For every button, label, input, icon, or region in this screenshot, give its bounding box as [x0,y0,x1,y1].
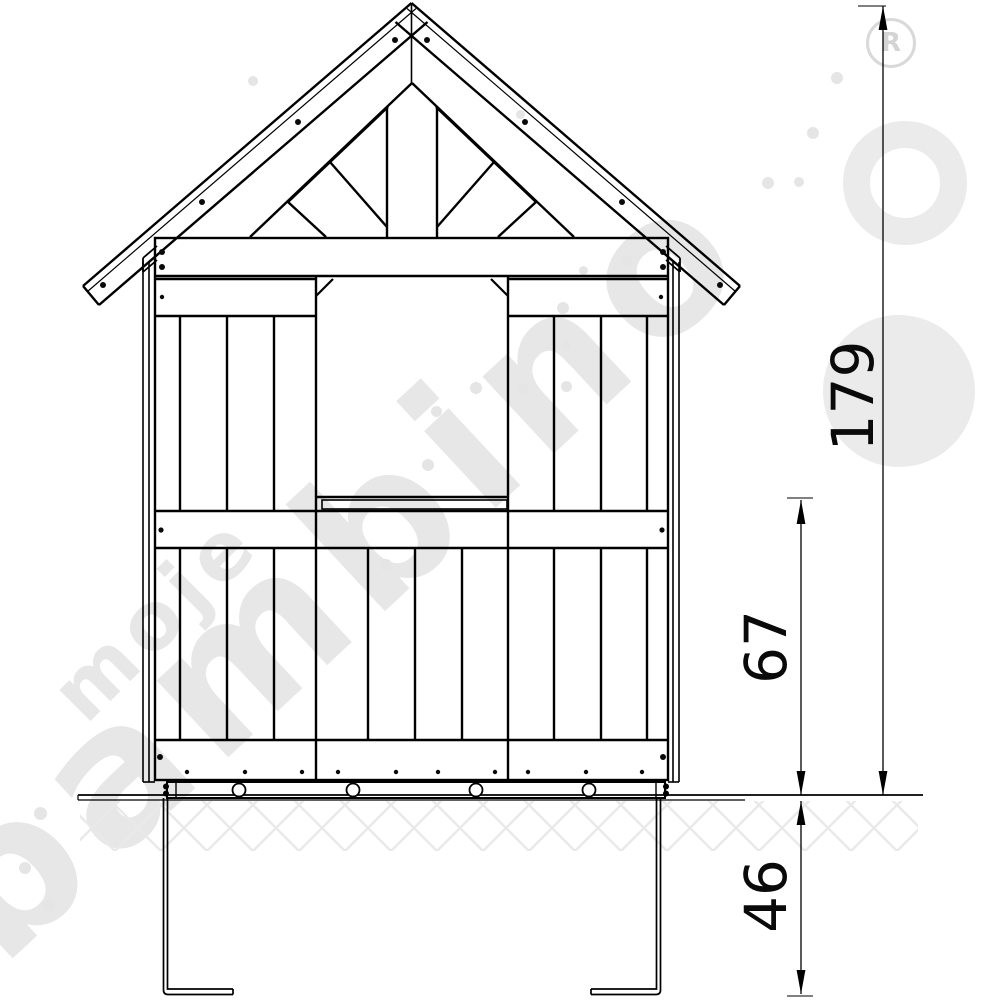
playhouse-elevation-page: moje bambino R [0,0,1000,1000]
arrow-up-icon [879,6,888,30]
window-corner-brace [316,279,333,296]
bolt-hole [583,784,596,797]
bolt-hole [233,784,246,797]
gable-roof [83,3,740,305]
playhouse-elevation-drawing: 179 67 46 [0,0,1000,1000]
soil-hatch [80,801,918,851]
bolt-hole [470,784,483,797]
window-sill [322,500,507,509]
window-corner-brace [491,279,508,296]
arrow-down-icon [797,771,806,795]
dimension-label-67: 67 [732,610,800,684]
arrow-down-icon [879,771,888,795]
dimension-label-46: 46 [732,859,800,933]
arrow-down-icon [797,970,806,994]
window-opening [316,279,508,509]
bolt-hole [347,784,360,797]
dimension-sill-height: 67 [732,498,813,795]
dimension-total-height: 179 [819,6,887,795]
gable-truss [250,83,574,237]
screw-dots [100,37,723,774]
dimension-label-179: 179 [819,341,887,452]
arrow-up-icon [797,500,806,524]
wall-cladding [143,238,679,782]
